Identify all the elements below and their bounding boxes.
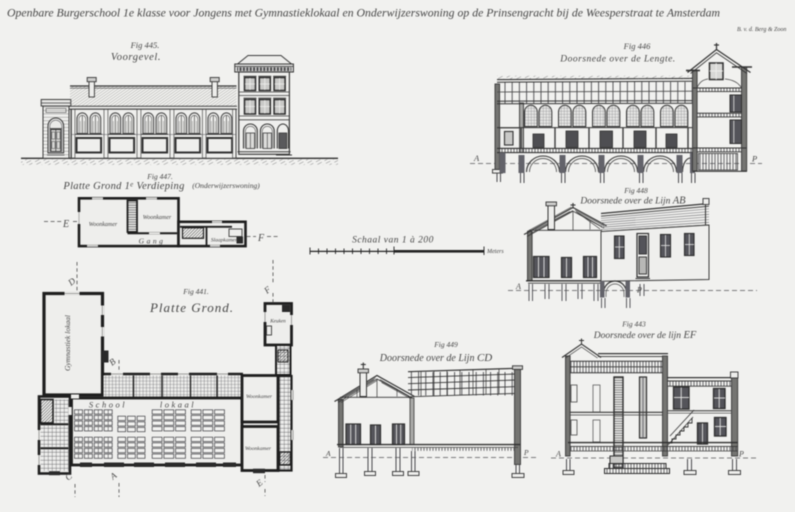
svg-text:A: A <box>473 153 480 163</box>
svg-text:Gymnastiek lokaal: Gymnastiek lokaal <box>63 315 72 371</box>
svg-text:Platte Grond 1e Verdieping: Platte Grond 1e Verdieping <box>62 181 184 193</box>
svg-text:Slaapkamer: Slaapkamer <box>211 238 238 244</box>
svg-text:Fig 446: Fig 446 <box>623 41 651 51</box>
svg-text:Meters: Meters <box>486 249 504 255</box>
svg-text:Fig 449: Fig 449 <box>433 340 458 349</box>
svg-text:E: E <box>62 219 69 230</box>
svg-text:Voorgevel.: Voorgevel. <box>111 52 161 63</box>
svg-text:Doorsnede over de Lijn AB: Doorsnede over de Lijn AB <box>579 196 686 207</box>
svg-text:Woonkamer: Woonkamer <box>245 446 272 452</box>
svg-text:Platte Grond.: Platte Grond. <box>149 300 234 315</box>
svg-text:A: A <box>325 449 331 458</box>
svg-text:Fig 443: Fig 443 <box>621 320 646 329</box>
svg-text:Fig 445.: Fig 445. <box>130 40 160 50</box>
svg-text:P: P <box>523 448 529 457</box>
svg-text:Keuken: Keuken <box>269 319 286 325</box>
svg-text:A: A <box>515 282 521 291</box>
svg-text:(Onderwijzerswoning): (Onderwijzerswoning) <box>192 181 260 190</box>
svg-text:A: A <box>555 450 561 459</box>
svg-text:Woonkamer: Woonkamer <box>143 215 172 221</box>
svg-text:Fig 447.: Fig 447. <box>146 172 173 181</box>
svg-text:Woonkamer: Woonkamer <box>89 222 118 228</box>
svg-text:School: School <box>89 400 127 410</box>
svg-text:P: P <box>738 450 744 459</box>
svg-text:Doorsnede over de Lengte.: Doorsnede over de Lengte. <box>559 55 675 65</box>
svg-text:Doorsnede over de Lijn CD: Doorsnede over de Lijn CD <box>379 352 493 364</box>
svg-text:lokaal: lokaal <box>160 400 196 410</box>
svg-text:P: P <box>636 286 642 295</box>
svg-text:P: P <box>751 154 757 164</box>
svg-text:B. v. d. Berg & Zoon: B. v. d. Berg & Zoon <box>737 27 786 33</box>
svg-text:Woonkamer: Woonkamer <box>246 394 273 400</box>
svg-text:Fig 441.: Fig 441. <box>182 287 209 296</box>
svg-text:Schaal van 1 à 200: Schaal van 1 à 200 <box>352 236 434 246</box>
svg-text:F: F <box>257 233 265 244</box>
svg-text:Gang: Gang <box>139 237 166 246</box>
svg-text:Fig 448: Fig 448 <box>623 186 648 195</box>
svg-text:Doorsnede over de lijn EF: Doorsnede over de lijn EF <box>593 330 697 341</box>
svg-text:Openbare Burgerschool 1e klass: Openbare Burgerschool 1e klasse voor Jon… <box>7 6 720 20</box>
